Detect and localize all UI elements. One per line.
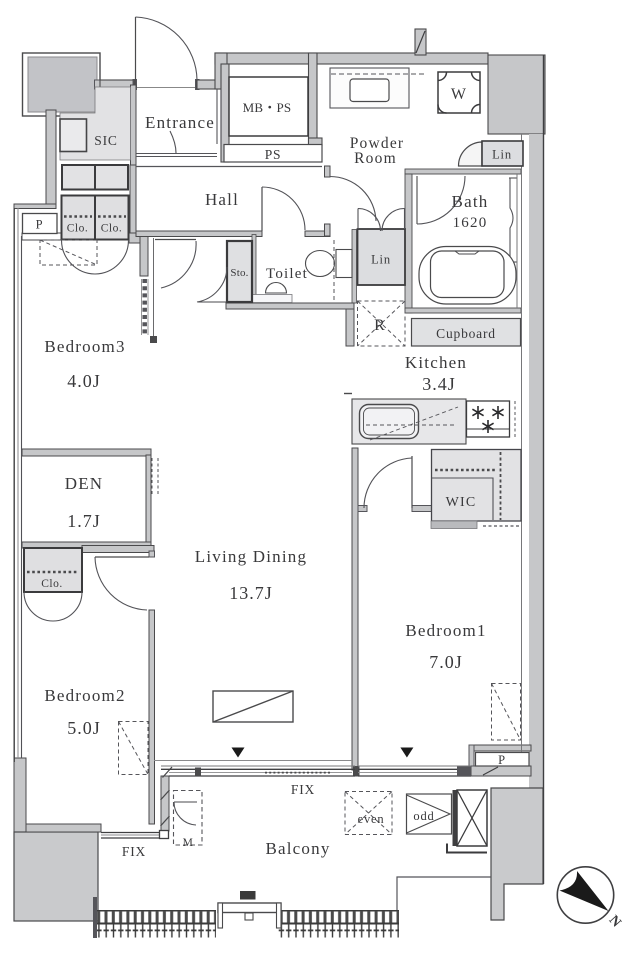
- svg-text:Sto.: Sto.: [230, 267, 248, 279]
- svg-text:3.4J: 3.4J: [422, 374, 456, 394]
- svg-text:DEN: DEN: [65, 474, 104, 493]
- svg-text:PS: PS: [265, 147, 282, 162]
- svg-text:Bath: Bath: [452, 192, 489, 211]
- svg-text:FIX: FIX: [291, 782, 315, 797]
- svg-text:Bedroom3: Bedroom3: [44, 337, 125, 356]
- svg-text:Clo.: Clo.: [41, 578, 63, 590]
- svg-text:13.7J: 13.7J: [229, 583, 273, 603]
- svg-text:1620: 1620: [453, 215, 488, 231]
- svg-text:MB・PS: MB・PS: [243, 100, 292, 115]
- svg-text:Cupboard: Cupboard: [436, 326, 496, 341]
- svg-text:M: M: [183, 837, 194, 849]
- svg-text:1.7J: 1.7J: [67, 511, 101, 531]
- svg-text:SIC: SIC: [94, 133, 117, 148]
- svg-text:WIC: WIC: [446, 495, 477, 510]
- svg-text:R: R: [374, 317, 386, 334]
- svg-text:P: P: [36, 218, 44, 232]
- svg-text:Toilet: Toilet: [266, 266, 308, 282]
- svg-text:Bedroom2: Bedroom2: [44, 686, 125, 705]
- svg-text:even: even: [358, 812, 385, 826]
- svg-text:7.0J: 7.0J: [429, 652, 463, 672]
- svg-text:FIX: FIX: [122, 844, 146, 859]
- svg-text:Clo.: Clo.: [101, 223, 123, 235]
- svg-text:Bedroom1: Bedroom1: [405, 621, 486, 640]
- svg-text:Kitchen: Kitchen: [405, 353, 467, 372]
- svg-text:Balcony: Balcony: [265, 839, 330, 858]
- svg-text:Room: Room: [354, 150, 397, 167]
- svg-text:4.0J: 4.0J: [67, 371, 101, 391]
- svg-text:Clo.: Clo.: [67, 223, 89, 235]
- svg-text:Hall: Hall: [205, 190, 239, 209]
- svg-text:W: W: [451, 86, 467, 103]
- svg-text:P: P: [498, 753, 506, 767]
- svg-text:Living Dining: Living Dining: [195, 547, 307, 566]
- svg-text:odd: odd: [413, 809, 434, 823]
- svg-text:Lin: Lin: [371, 253, 391, 267]
- svg-text:5.0J: 5.0J: [67, 718, 101, 738]
- svg-text:Entrance: Entrance: [145, 113, 215, 132]
- svg-text:Lin: Lin: [492, 148, 512, 162]
